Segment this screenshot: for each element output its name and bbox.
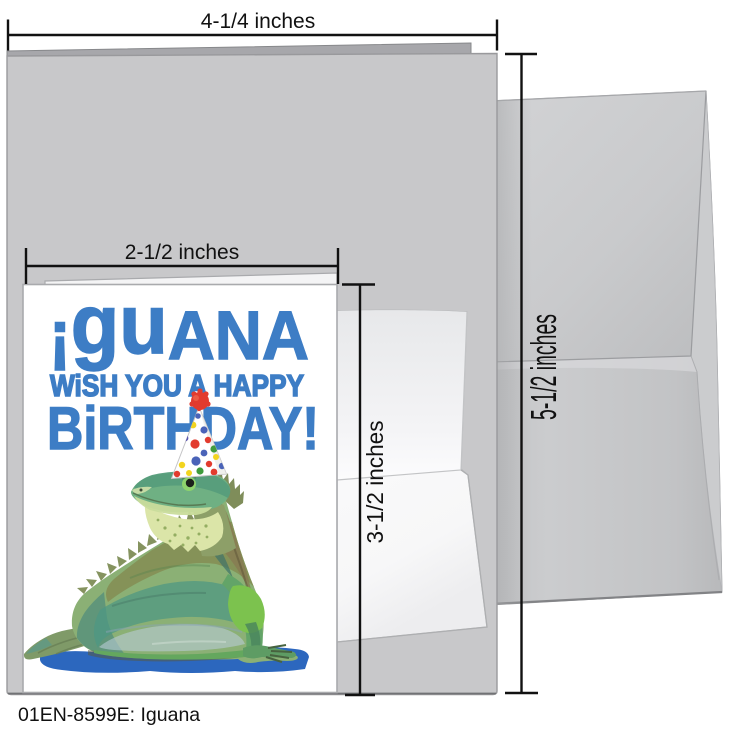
svg-text:01EN-8599E: Iguana: 01EN-8599E: Iguana — [18, 704, 200, 726]
svg-text:5-1/2 inches: 5-1/2 inches — [523, 314, 564, 420]
svg-text:4-1/4 inches: 4-1/4 inches — [201, 10, 315, 33]
svg-text:3-1/2 inches: 3-1/2 inches — [362, 421, 388, 544]
svg-text:2-1/2 inches: 2-1/2 inches — [125, 241, 239, 264]
